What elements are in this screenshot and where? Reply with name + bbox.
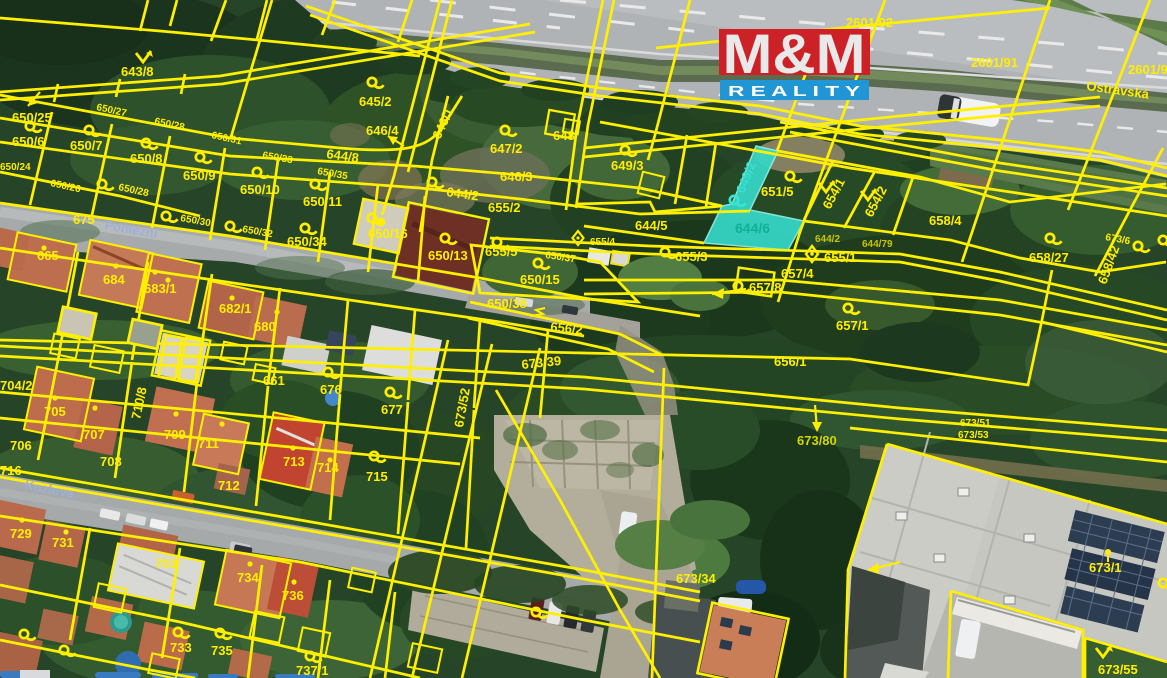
svg-text:650/6: 650/6 xyxy=(12,134,45,149)
svg-text:644/79: 644/79 xyxy=(862,239,893,250)
svg-text:650/25: 650/25 xyxy=(12,110,52,125)
svg-text:673/55: 673/55 xyxy=(1098,662,1138,677)
svg-text:650/7: 650/7 xyxy=(70,138,103,153)
svg-text:658/27: 658/27 xyxy=(1029,250,1069,265)
svg-text:682/1: 682/1 xyxy=(219,301,252,316)
svg-text:650/10: 650/10 xyxy=(240,182,280,197)
svg-text:2601/9: 2601/9 xyxy=(1128,62,1167,77)
svg-text:711: 711 xyxy=(198,436,219,451)
svg-text:650/24: 650/24 xyxy=(0,162,31,173)
svg-text:651/5: 651/5 xyxy=(761,184,794,199)
svg-text:676: 676 xyxy=(320,382,342,397)
svg-text:673/80: 673/80 xyxy=(797,433,837,448)
svg-text:655/3: 655/3 xyxy=(675,249,708,264)
svg-text:706: 706 xyxy=(10,438,32,453)
svg-text:650/34: 650/34 xyxy=(287,234,328,249)
svg-text:714: 714 xyxy=(317,460,339,475)
svg-text:646/4: 646/4 xyxy=(366,123,399,138)
svg-text:684: 684 xyxy=(103,272,125,287)
svg-text:649/3: 649/3 xyxy=(611,158,644,173)
svg-text:673/34: 673/34 xyxy=(676,571,717,586)
svg-text:707: 707 xyxy=(83,427,105,442)
svg-text:737/1: 737/1 xyxy=(296,663,329,678)
svg-text:647/2: 647/2 xyxy=(490,141,523,156)
svg-text:657/4: 657/4 xyxy=(781,266,814,281)
svg-text:734: 734 xyxy=(237,570,259,585)
svg-text:731: 731 xyxy=(52,535,74,550)
svg-text:650/11: 650/11 xyxy=(303,194,342,209)
svg-text:M&M: M&M xyxy=(723,22,866,85)
svg-text:645/2: 645/2 xyxy=(359,94,392,109)
svg-text:655/4: 655/4 xyxy=(590,237,615,248)
svg-text:657/8: 657/8 xyxy=(749,280,782,295)
svg-text:650/16: 650/16 xyxy=(368,226,408,241)
svg-text:650/8: 650/8 xyxy=(130,151,163,166)
svg-text:675: 675 xyxy=(73,212,95,227)
svg-text:655/2: 655/2 xyxy=(488,200,521,215)
svg-text:704/2: 704/2 xyxy=(0,378,33,393)
svg-text:650/13: 650/13 xyxy=(428,248,468,263)
svg-text:643/8: 643/8 xyxy=(121,64,154,79)
svg-text:2601/91: 2601/91 xyxy=(971,55,1018,70)
svg-text:661: 661 xyxy=(263,373,285,388)
svg-text:644/5: 644/5 xyxy=(635,218,668,233)
svg-text:673/53: 673/53 xyxy=(958,430,989,441)
svg-text:708: 708 xyxy=(100,454,122,469)
svg-text:673/1: 673/1 xyxy=(1089,560,1122,575)
svg-text:683/1: 683/1 xyxy=(144,281,177,296)
svg-text:712: 712 xyxy=(218,478,240,493)
svg-text:733: 733 xyxy=(170,640,192,655)
svg-text:677: 677 xyxy=(381,402,403,417)
svg-text:R E A L I T Y: R E A L I T Y xyxy=(728,83,860,100)
svg-text:658/4: 658/4 xyxy=(929,213,962,228)
svg-text:646/3: 646/3 xyxy=(500,169,533,184)
svg-text:655/1: 655/1 xyxy=(824,250,857,265)
svg-text:648: 648 xyxy=(553,128,575,143)
svg-text:650/38: 650/38 xyxy=(487,296,527,311)
svg-text:715: 715 xyxy=(366,469,388,484)
svg-text:673/51: 673/51 xyxy=(960,418,991,429)
svg-text:703: 703 xyxy=(155,556,177,571)
svg-text:736: 736 xyxy=(282,588,304,603)
svg-text:655/5: 655/5 xyxy=(485,244,518,259)
svg-text:709: 709 xyxy=(164,427,186,442)
svg-text:644/6: 644/6 xyxy=(735,220,770,236)
svg-text:705: 705 xyxy=(44,404,66,419)
svg-text:665: 665 xyxy=(37,248,59,263)
svg-text:713: 713 xyxy=(283,454,305,469)
svg-text:650/15: 650/15 xyxy=(520,272,560,287)
svg-text:656/1: 656/1 xyxy=(774,354,807,369)
svg-text:716: 716 xyxy=(0,463,22,478)
svg-text:680: 680 xyxy=(254,319,276,334)
svg-text:650/9: 650/9 xyxy=(183,168,216,183)
svg-text:735: 735 xyxy=(211,643,233,658)
svg-text:729: 729 xyxy=(10,526,32,541)
svg-text:644/2: 644/2 xyxy=(815,234,840,245)
svg-text:657/1: 657/1 xyxy=(836,318,869,333)
